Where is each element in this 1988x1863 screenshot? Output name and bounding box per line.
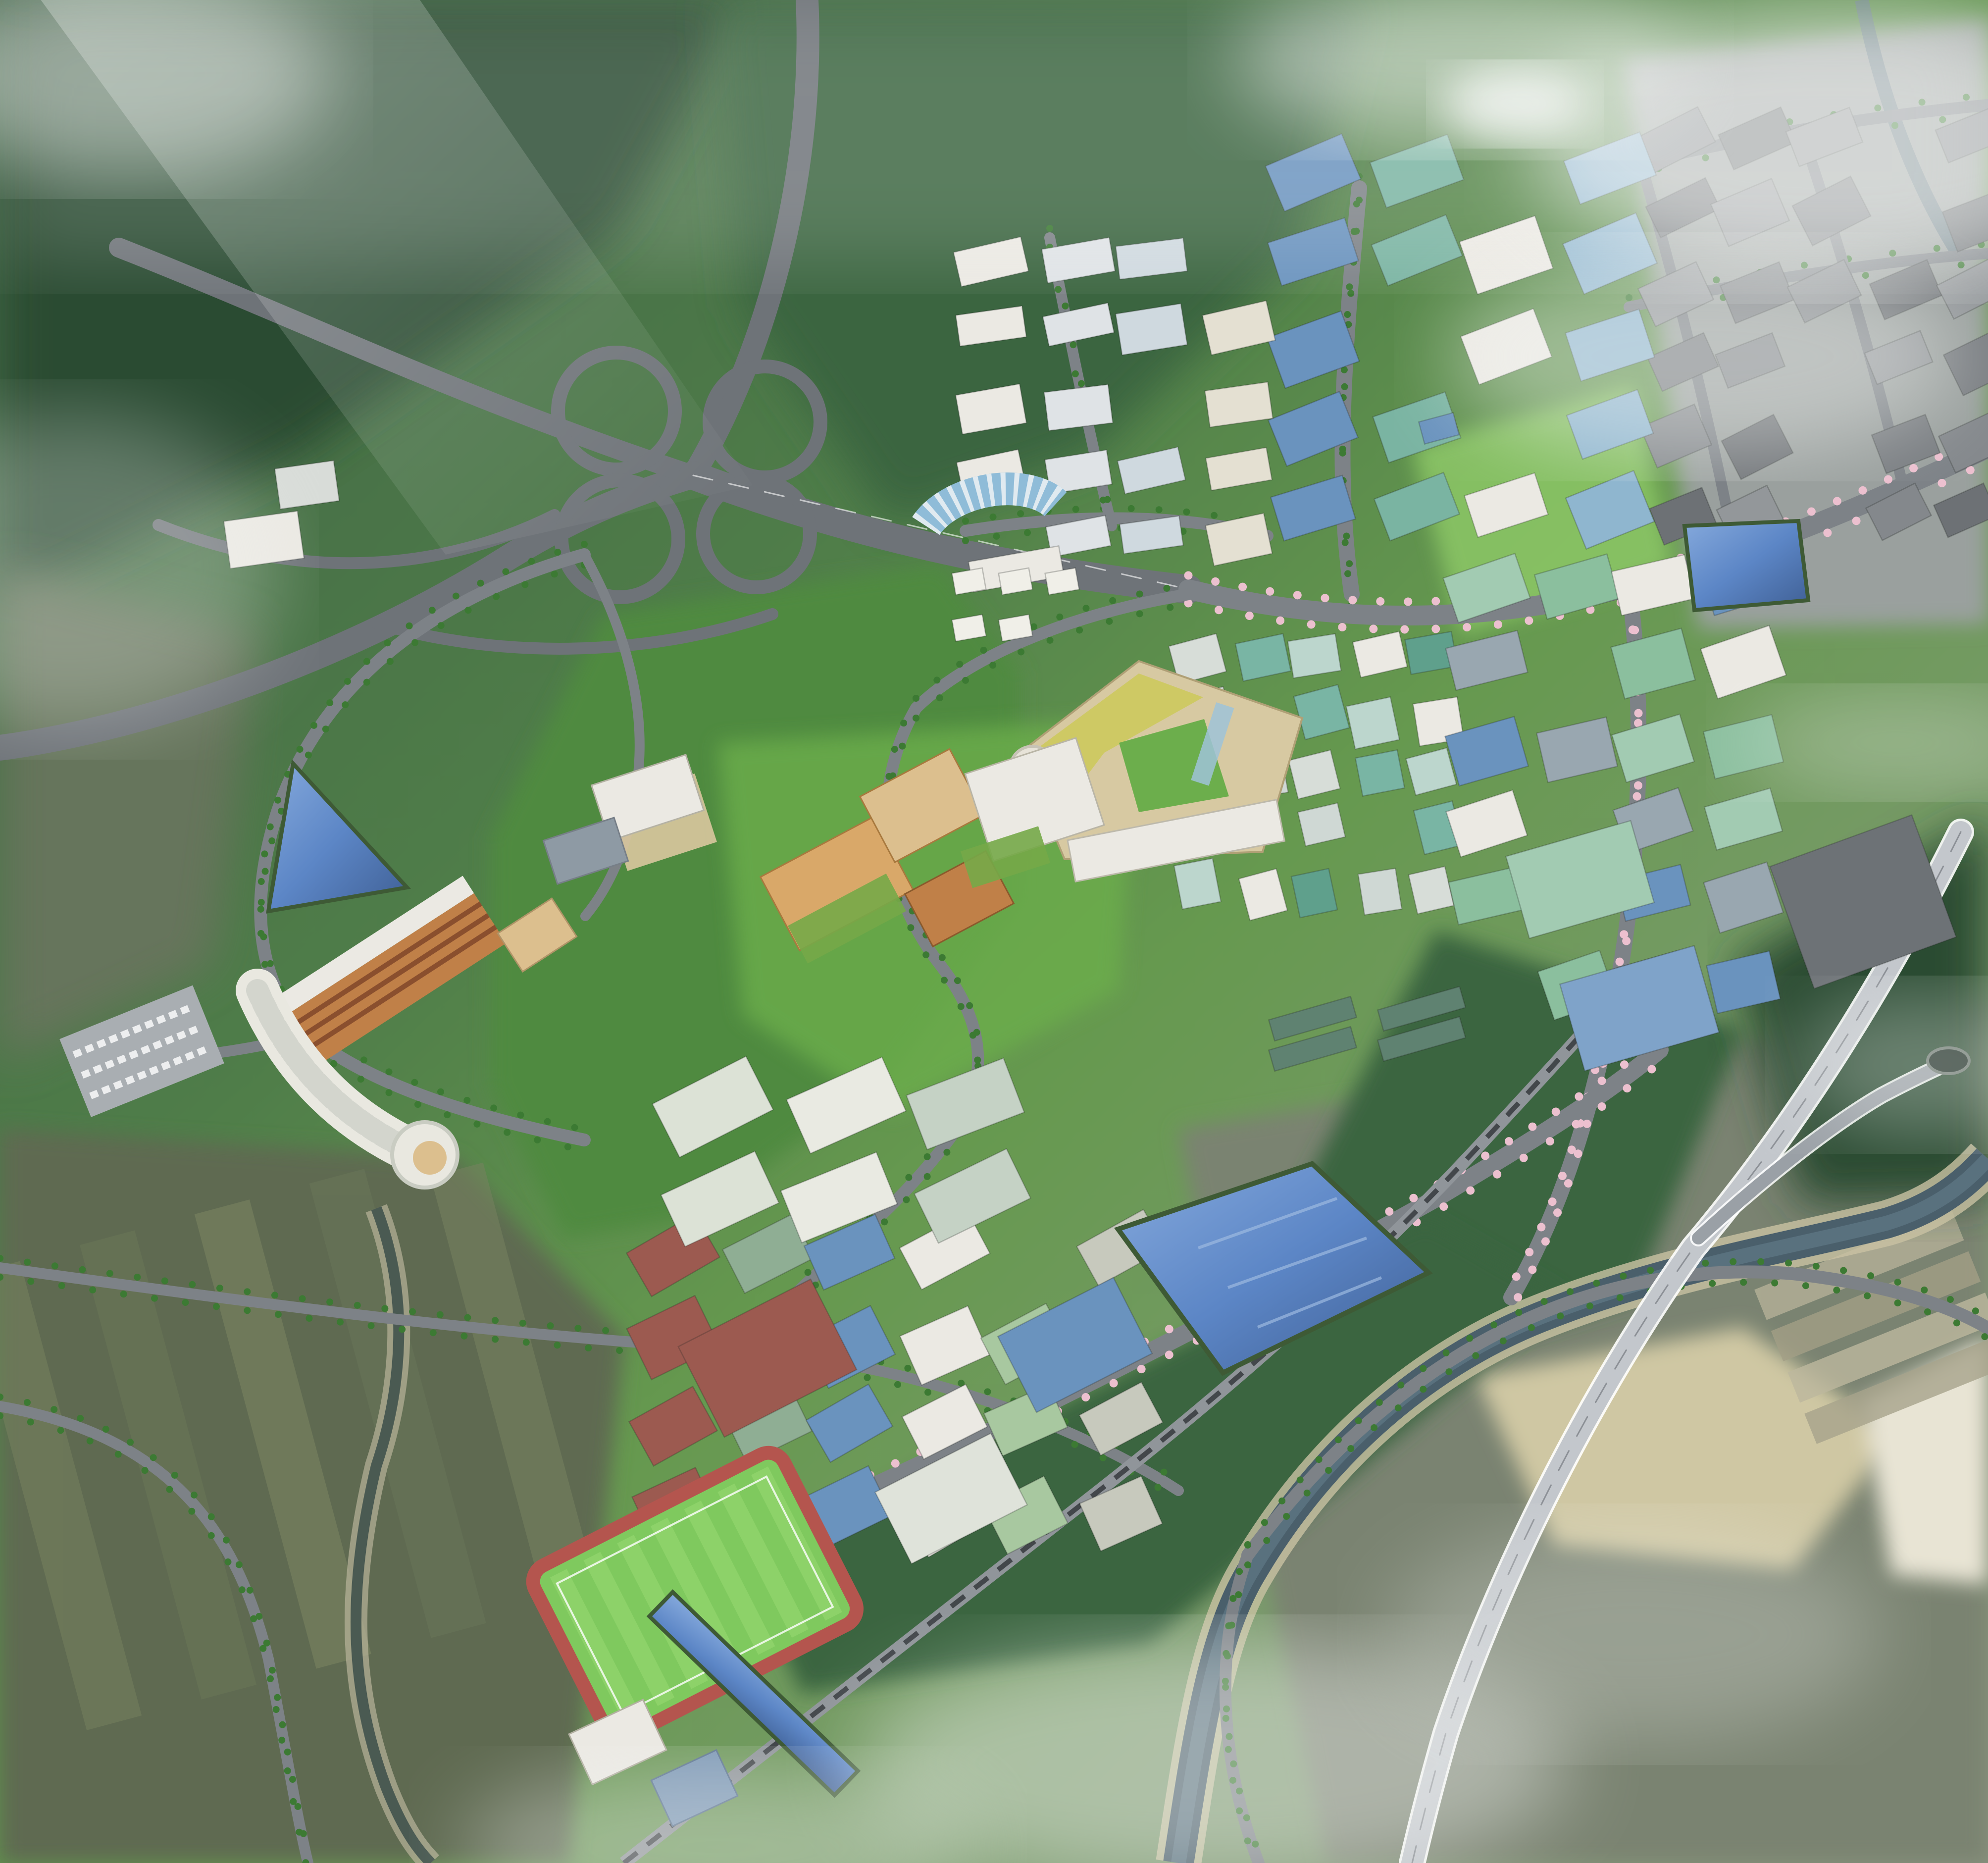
building [1174, 858, 1221, 909]
building [952, 615, 986, 641]
building [1205, 382, 1273, 427]
building [1045, 568, 1079, 595]
northeast-pond [1684, 521, 1808, 610]
building [1358, 869, 1402, 915]
masterplan-svg [0, 0, 1988, 1863]
building [1044, 384, 1113, 430]
building [952, 568, 986, 595]
building [1288, 634, 1341, 678]
horizon-haze [0, 0, 1988, 267]
building [1409, 867, 1454, 914]
building [1355, 750, 1404, 796]
aerial-masterplan-map [0, 0, 1988, 1863]
building [1291, 869, 1337, 918]
building [999, 568, 1033, 595]
building [999, 615, 1033, 641]
building [275, 461, 339, 509]
building [1346, 697, 1399, 749]
